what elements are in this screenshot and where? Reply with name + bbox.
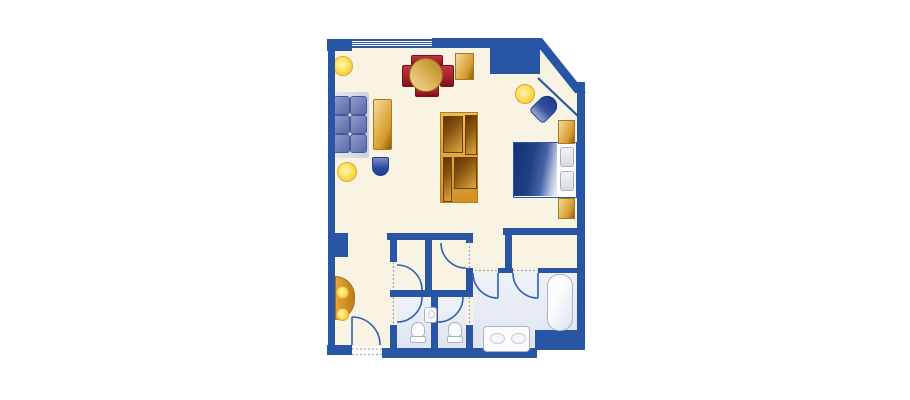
diagonal-wall: [531, 38, 586, 93]
toilet-left-door-arc: [397, 297, 422, 322]
bathroom-right-door-arc: [513, 273, 538, 298]
floor-plan-canvas: [0, 0, 910, 400]
toilet-right-door-arc: [438, 297, 463, 322]
floor-plan: [325, 38, 588, 360]
plan-overlay-layer: [325, 38, 588, 360]
closet-left-door-arc: [397, 265, 422, 290]
closet-right-door-arc: [441, 243, 466, 268]
entry-door-arc: [352, 317, 380, 345]
bathroom-left-door-arc: [473, 273, 498, 298]
